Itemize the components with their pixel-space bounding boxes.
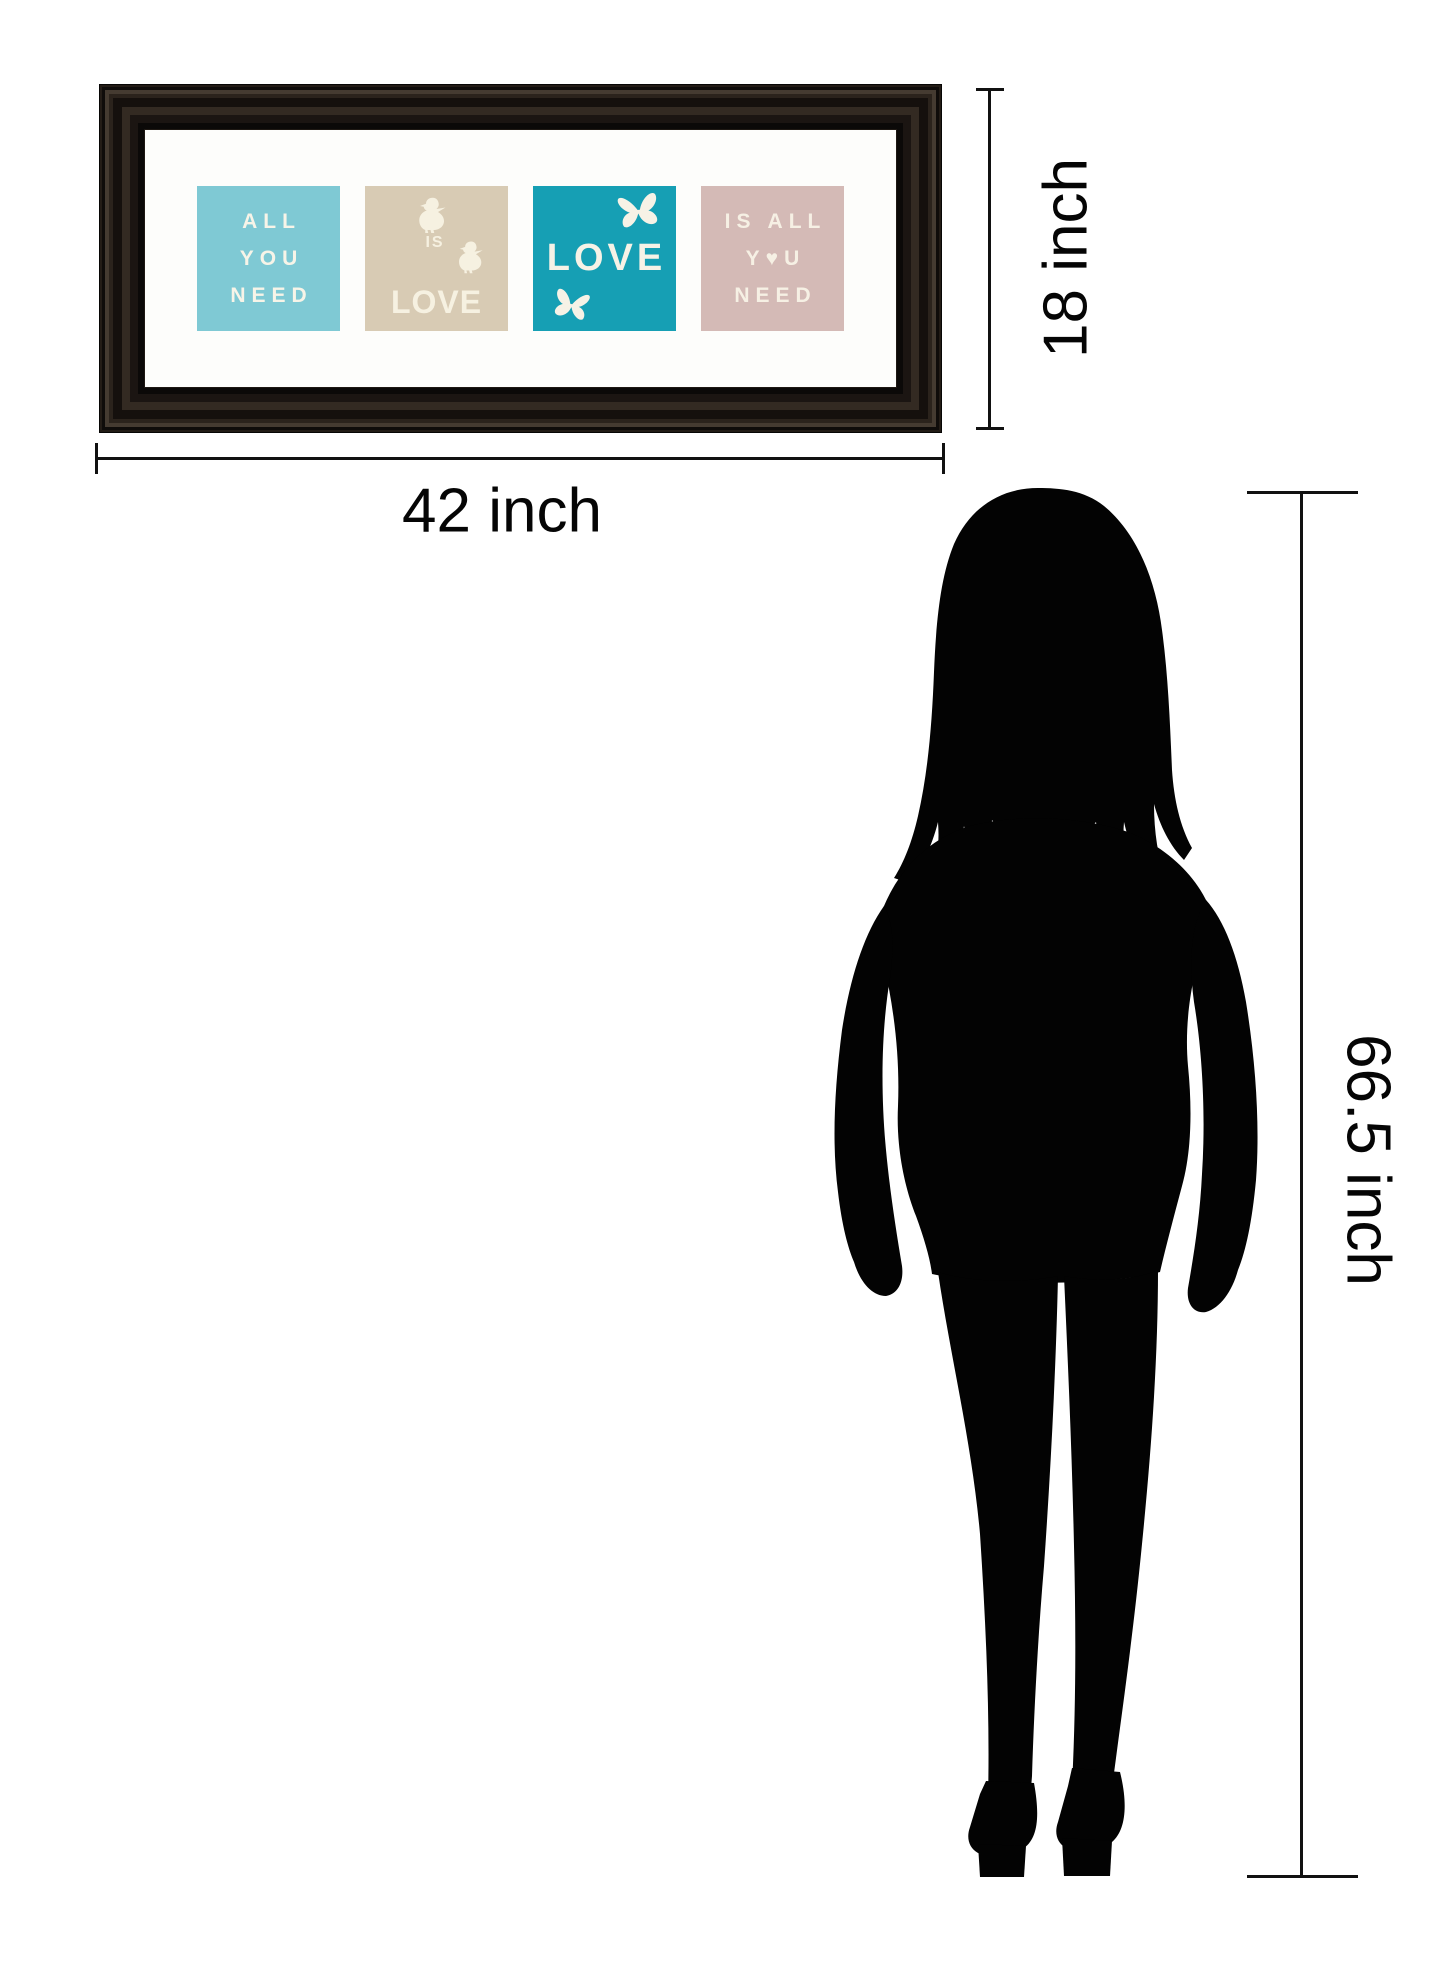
- figure-height-dimension-line: [1300, 492, 1303, 1878]
- silhouette-left-heel: [978, 1844, 1026, 1877]
- width-dimension-line: [96, 457, 944, 460]
- silhouette-right-leg: [1064, 1270, 1158, 1788]
- width-dimension-tick: [942, 443, 945, 474]
- panel-text-line-heart: Y♥U: [725, 240, 827, 277]
- silhouette-right-heel: [1062, 1838, 1112, 1876]
- bird-icon: [417, 194, 447, 236]
- panel-text-line: YOU: [230, 240, 312, 277]
- width-dimension-tick: [95, 443, 98, 474]
- butterfly-icon: [615, 189, 663, 234]
- product-size-diagram: ALL YOU NEED IS LOVE LOVE: [0, 0, 1445, 1973]
- art-panel-is-all-you-need: IS ALL Y♥U NEED: [701, 186, 844, 331]
- silhouette-left-leg: [938, 1272, 1058, 1801]
- panel-word-love: LOVE: [365, 284, 508, 321]
- panel-text-line: ALL: [230, 203, 312, 240]
- panel-text-line: IS ALL: [725, 203, 827, 240]
- bird-icon: [457, 238, 484, 276]
- butterfly-icon: [550, 285, 593, 325]
- panel-word-love: LOVE: [547, 237, 666, 280]
- silhouette-right-arm: [1188, 900, 1258, 1312]
- panel-text-block: ALL YOU NEED: [224, 203, 312, 314]
- silhouette-torso: [879, 818, 1209, 1282]
- figure-height-dimension-label: 66.5 inch: [1333, 1034, 1404, 1286]
- height-dimension-line: [988, 89, 991, 430]
- width-dimension-label: 42 inch: [402, 476, 602, 547]
- height-dimension-tick: [976, 88, 1004, 91]
- art-panel-all-you-need: ALL YOU NEED: [197, 186, 340, 331]
- panel-text-line: NEED: [725, 277, 827, 314]
- panel-word-is: IS: [415, 234, 455, 252]
- art-panel-is-love: IS LOVE: [365, 186, 508, 331]
- panel-text-line: NEED: [230, 277, 312, 314]
- picture-frame: ALL YOU NEED IS LOVE LOVE: [100, 85, 941, 432]
- picture-mat: ALL YOU NEED IS LOVE LOVE: [145, 130, 896, 387]
- female-silhouette: [820, 486, 1265, 1880]
- panel-text-block: IS ALL Y♥U NEED: [719, 203, 827, 314]
- art-panel-love: LOVE: [533, 186, 676, 331]
- height-dimension-label: 18 inch: [1031, 158, 1102, 358]
- height-dimension-tick: [976, 427, 1004, 430]
